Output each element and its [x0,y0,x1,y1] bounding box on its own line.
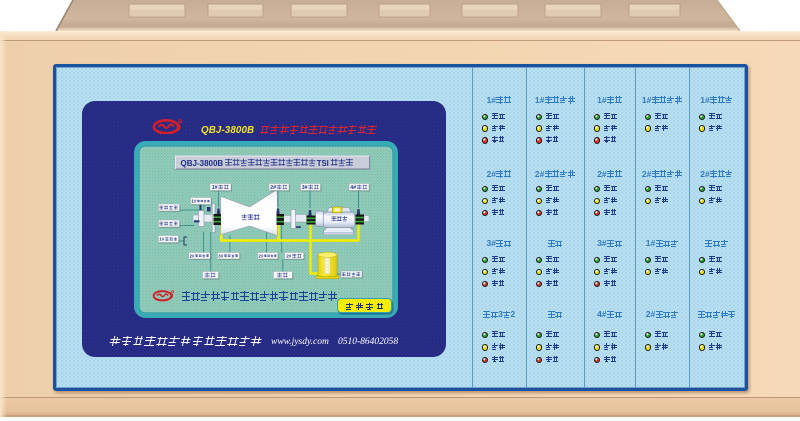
svg-text:2#: 2# [190,253,195,258]
svg-text:4#: 4# [350,185,356,191]
svg-text:QBJ-3800B: QBJ-3800B [181,159,224,168]
svg-text:1#: 1# [159,237,165,242]
svg-text:TSI: TSI [317,159,329,168]
svg-text:3#: 3# [218,253,223,258]
svg-text:3#: 3# [302,185,308,191]
svg-text:1#: 1# [212,185,218,191]
svg-text:1#: 1# [191,199,197,204]
svg-text:2#: 2# [286,254,292,259]
svg-text:2#: 2# [258,253,263,258]
svg-text:2#: 2# [270,185,276,191]
